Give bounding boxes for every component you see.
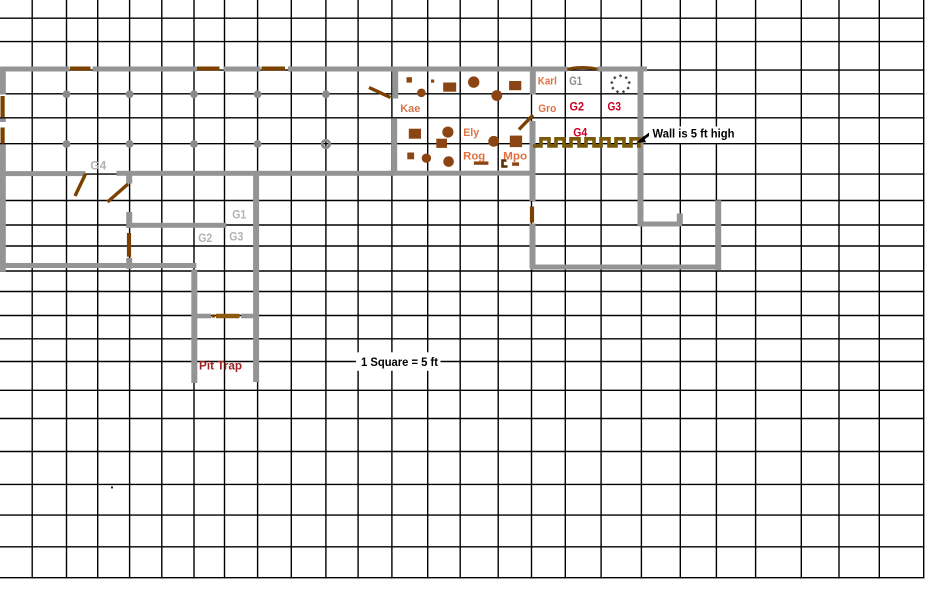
svg-text:G2: G2 (570, 102, 585, 114)
svg-text:G2: G2 (198, 233, 212, 245)
svg-text:G3: G3 (229, 232, 243, 244)
svg-text:G1: G1 (569, 76, 583, 88)
svg-text:G1: G1 (232, 210, 247, 222)
svg-text:Kae: Kae (400, 103, 420, 115)
svg-text:G4: G4 (573, 127, 588, 139)
svg-text:Gro: Gro (538, 103, 556, 115)
svg-text:Wall is 5 ft high: Wall is 5 ft high (653, 129, 735, 141)
svg-text:G4: G4 (90, 161, 107, 173)
svg-text:Ely: Ely (463, 127, 480, 139)
svg-text:1 Square = 5 ft: 1 Square = 5 ft (361, 357, 438, 369)
svg-text:Pit Trap: Pit Trap (199, 358, 242, 372)
svg-text:Rog: Rog (463, 150, 485, 162)
svg-text:Mpo: Mpo (503, 151, 527, 163)
svg-text:Karl: Karl (538, 75, 557, 87)
svg-text:G3: G3 (608, 102, 622, 114)
